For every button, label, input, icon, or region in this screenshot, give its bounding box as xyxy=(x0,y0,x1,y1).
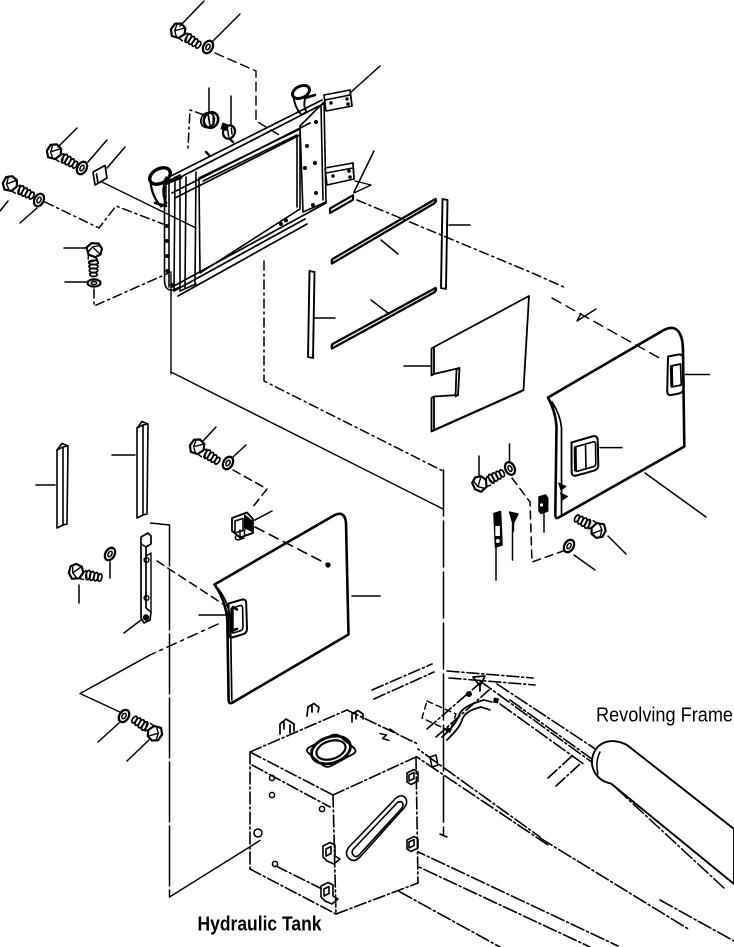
svg-text:Hydraulic Tank: Hydraulic Tank xyxy=(198,914,323,936)
svg-text:Revolving Frame: Revolving Frame xyxy=(596,705,733,727)
